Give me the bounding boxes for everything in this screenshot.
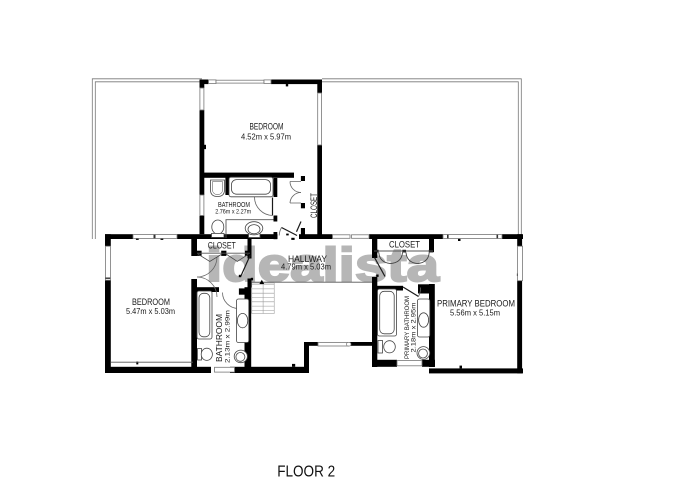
svg-text:2.76m x 2.27m: 2.76m x 2.27m [215, 209, 251, 216]
svg-text:CLOSET: CLOSET [208, 240, 236, 250]
svg-text:BEDROOM: BEDROOM [250, 122, 284, 132]
svg-text:2.13m x 2.99m: 2.13m x 2.99m [225, 309, 232, 363]
svg-text:CLOSET: CLOSET [309, 193, 319, 218]
svg-text:4.52m x 5.97m: 4.52m x 5.97m [241, 133, 291, 142]
svg-text:BATHROOM: BATHROOM [215, 314, 224, 362]
svg-text:5.47m x 5.03m: 5.47m x 5.03m [126, 307, 175, 316]
svg-text:PRIMARY BEDROOM: PRIMARY BEDROOM [437, 299, 515, 309]
svg-text:5.56m x 5.15m: 5.56m x 5.15m [450, 308, 500, 317]
svg-text:2.18m x 2.95m: 2.18m x 2.95m [412, 303, 418, 353]
svg-text:PRIMARY BATHROOM: PRIMARY BATHROOM [404, 296, 411, 359]
svg-text:BEDROOM: BEDROOM [132, 297, 170, 307]
svg-text:CLOSET: CLOSET [389, 240, 420, 250]
svg-text:4.79m x 5.03m: 4.79m x 5.03m [281, 262, 331, 271]
svg-text:FLOOR 2: FLOOR 2 [277, 463, 335, 480]
